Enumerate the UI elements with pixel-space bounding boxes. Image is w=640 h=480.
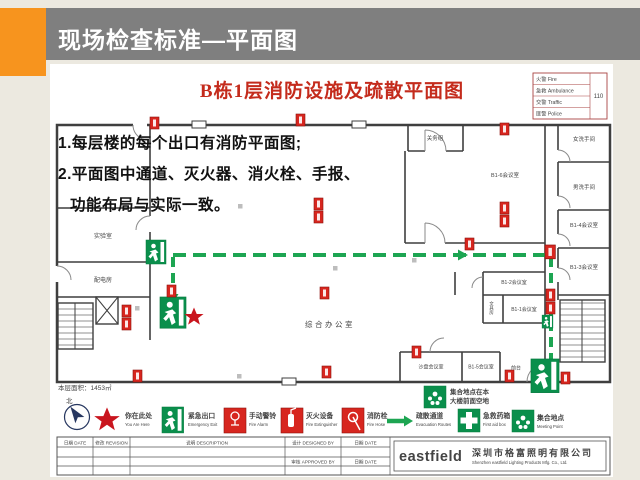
emergency-row: 交警 Traffic [536,98,562,106]
room-label: B1-3会议室 [570,263,599,271]
legend-label: 灭火设备 [305,411,333,420]
room-label: B1-1会议室 [511,306,537,313]
inspection-note-2: 2.平面图中通道、灭火器、消火栓、手报、 [58,162,360,184]
titleblock-revision: 修改 REVISION [95,440,127,447]
inspection-note-1: 1.每层楼的每个出口有消防平面图; [58,131,302,153]
emergency-phone: 110 [594,94,604,100]
legend-sublabel: Fire Extinguisher [306,422,338,427]
legend-sublabel: Fire Alarm [249,422,269,427]
evacuation-route-arrow-icon [387,416,413,427]
legend-sublabel: Emergency Exit [188,422,218,427]
accent-orange-block [0,8,46,76]
meeting-point-icon [424,386,446,408]
compass-icon [65,403,90,429]
meeting-point-icon [512,410,534,432]
fire-hose-icon [342,408,364,433]
titleblock-designed: 设计 DESIGNED BY [292,440,334,447]
title-block: 日期 DATE 修改 REVISION 说明 DESCRIPTION 设计 DE… [57,437,610,475]
legend-label: 消防栓 [367,411,388,420]
page-title: 现场检查标准—平面图 [58,21,298,55]
legend-sublabel: Fire Hose [367,422,386,427]
north-label: 北 [66,397,73,405]
room-label: 关务组 [427,134,444,142]
room-label: 前台 [511,365,521,372]
emergency-row: 火警 Fire [536,75,557,83]
meeting-note-line2: 大楼前面空地 [450,396,490,405]
elevator [96,297,118,324]
meeting-point-note: 集合地点在本 大楼前面空地 [424,386,490,408]
floor-plan-svg: 实验室 配电房 关务组 B1-6会议室 女洗手间 男洗手间 B1-4会议室 B1… [0,0,640,480]
emergency-exit-icon [160,297,186,328]
emergency-exit-icon [531,359,559,393]
you-are-here-star-icon [94,407,119,430]
legend-sublabel: First aid box [483,422,507,427]
first-aid-icon [458,409,480,432]
inspection-note-3: 功能布局与实际一致。 [70,193,230,215]
room-label: B1-4会议室 [570,221,599,229]
legend-label: 手动警铃 [249,411,276,420]
emergency-exit-icon [542,315,553,328]
legend-label: 紧急出口 [188,411,215,420]
room-label: 文具房 [489,300,495,316]
room-label: B1-5会议室 [468,364,494,371]
legend-sublabel: Evacuation Routes [416,422,451,427]
room-label: B1-6会议室 [491,171,520,179]
room-label: 综合办公室 [305,319,355,329]
meeting-note-line1: 集合地点在本 [449,387,490,396]
fire-alarm-icon [224,408,246,433]
fire-equipment-icons [122,114,570,384]
stairs-left [58,303,93,349]
room-label: 男洗手间 [573,183,595,191]
legend-label: 集合地点 [536,413,564,422]
stairs-right [560,300,605,362]
room-label: B1-2会议室 [501,279,527,286]
you-are-here-star-icon [184,308,203,325]
emergency-row: 急救 Ambulance [536,87,574,95]
room-label: 女洗手间 [573,135,595,143]
emergency-row: 匪警 Police [536,110,562,118]
legend-label: 你在此处 [124,411,152,420]
titleblock-approved: 审核 APPROVED BY [291,459,334,466]
legend-label: 急救药箱 [483,411,510,420]
emergency-exit-icon [146,240,166,264]
legend-sublabel: Meeting Point [537,424,563,429]
legend-label: 疏散通道 [416,411,443,420]
room-label: 实验室 [94,232,112,240]
emergency-numbers-table: 火警 Fire 急救 Ambulance 交警 Traffic 匪警 Polic… [533,73,607,119]
legend-sublabel: You Are Here [125,422,150,427]
room-label: 配电房 [94,276,112,284]
company-logo: eastfield [399,449,462,465]
slide: 实验室 配电房 关务组 B1-6会议室 女洗手间 男洗手间 B1-4会议室 B1… [0,0,640,480]
fire-extinguisher-icon [281,408,303,433]
company-name-en: Shenzhen eastfield Lighting Products Mfg… [472,460,567,465]
emergency-exit-icon [162,407,184,433]
plan-title: B栋1层消防设施及疏散平面图 [182,76,482,103]
floor-area-label: 本层面积：1453㎡ [58,383,112,392]
evacuation-route-lines [168,250,557,378]
room-label: 沙盘会议室 [418,364,443,371]
titleblock-description: 说明 DESCRIPTION [186,440,228,447]
column-markers [135,204,417,379]
legend: 你在此处 You Are Here 紧急出口 Emergency Exit 手动… [94,407,564,433]
company-name-cn: 深圳市格富照明有限公司 [472,447,593,458]
